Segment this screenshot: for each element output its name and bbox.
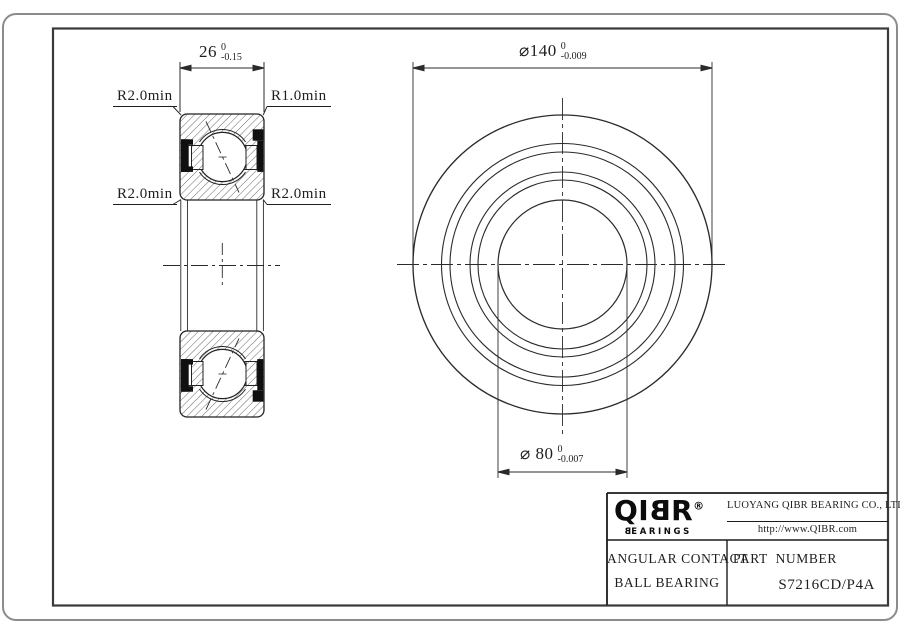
section-top-half <box>180 114 264 200</box>
dimension-od-value: ⌀140 <box>519 42 557 59</box>
dimension-od: ⌀140 0 -0.009 <box>519 42 587 62</box>
arrowhead <box>701 65 712 70</box>
qibr-logo: QIBR® BEARINGS <box>614 497 700 537</box>
seal-block-left <box>192 362 204 386</box>
dimension-width-tol-lower: -0.15 <box>221 53 242 63</box>
section-view <box>163 62 280 417</box>
part-number-value: S7216CD/P4A <box>727 577 875 594</box>
arrowhead <box>498 469 509 474</box>
dimension-od-tol-lower: -0.009 <box>561 52 587 62</box>
front-view <box>397 62 728 478</box>
section-bottom-half <box>180 331 264 417</box>
dimension-width-value: 26 <box>199 43 217 60</box>
arrowhead <box>180 65 191 70</box>
product-type-line2: BALL BEARING <box>607 575 727 591</box>
dimension-bore: ⌀ 80 0 -0.007 <box>520 445 583 465</box>
seal-block-left <box>192 146 204 170</box>
dimension-bore-value: ⌀ 80 <box>520 445 554 462</box>
label-r2-bottom-left: R2.0min <box>113 186 177 205</box>
qibr-logo-subtext: BEARINGS <box>614 527 700 537</box>
drawing-frame <box>53 29 888 606</box>
label-r2-bottom-right: R2.0min <box>267 186 331 205</box>
arrowhead <box>253 65 264 70</box>
label-r2-top-left: R2.0min <box>113 88 177 107</box>
registered-trademark-icon: ® <box>693 500 705 513</box>
product-type-line1: ANGULAR CONTACT <box>607 551 727 567</box>
dimension-width: 26 0 -0.15 <box>199 43 242 63</box>
company-name: LUOYANG QIBR BEARING CO., LTD <box>727 500 888 511</box>
drawing-sheet: 26 0 -0.15 ⌀140 0 -0.009 ⌀ 80 0 -0.007 R… <box>0 0 900 636</box>
seal-block-right <box>246 146 257 170</box>
dimension-bore-tol-lower: -0.007 <box>558 455 584 465</box>
part-number-label: PART NUMBER <box>733 551 837 567</box>
qibr-logo-wordmark: QIBR® <box>614 497 700 525</box>
seal-block-right <box>246 362 257 386</box>
arrowhead <box>413 65 424 70</box>
company-website: http://www.QIBR.com <box>727 524 888 535</box>
width-dimension-lines <box>180 62 264 112</box>
arrowhead <box>616 469 627 474</box>
label-r1-top-right: R1.0min <box>267 88 331 107</box>
